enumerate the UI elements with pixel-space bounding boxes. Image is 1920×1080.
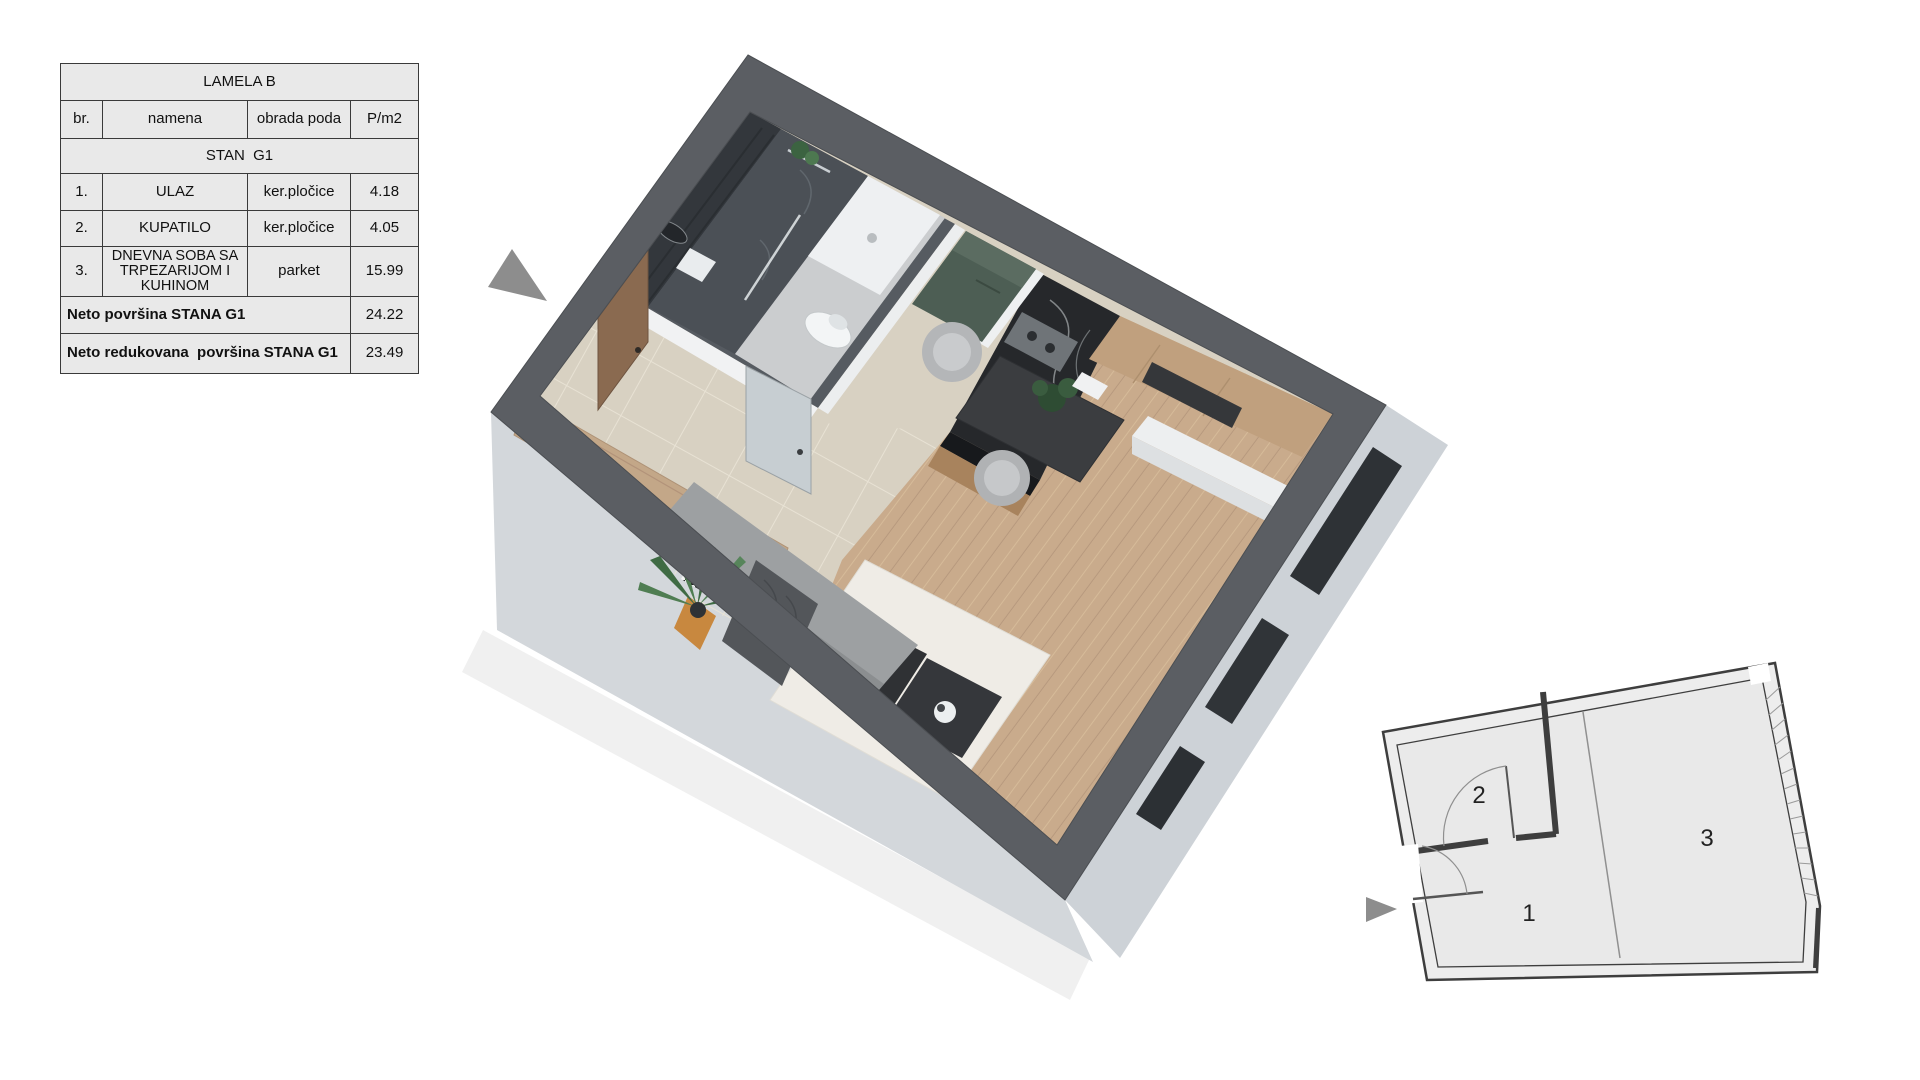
room-label-2: 2 (1472, 782, 1485, 809)
mini-plan-2d: 2 3 1 (1366, 663, 1820, 980)
burner-icon (1045, 343, 1055, 353)
dining-chair-seat (933, 333, 971, 371)
door-handle-icon (635, 347, 641, 353)
table-plant (1058, 378, 1078, 398)
room-label-1: 1 (1522, 900, 1535, 927)
tableware (937, 704, 945, 712)
plant-pot (690, 602, 706, 618)
bathroom-plant (805, 151, 819, 165)
entry-arrow-3d-icon (488, 249, 547, 301)
room-label-3: 3 (1700, 825, 1713, 852)
shower-drain (867, 233, 877, 243)
plan-partition (1516, 834, 1556, 838)
render-3d (0, 0, 1448, 1000)
table-plant (1032, 380, 1048, 396)
dining-chair-seat (984, 460, 1020, 496)
page: LAMELA B br. namena obrada poda P/m2 STA… (0, 0, 1920, 1080)
tray (934, 701, 956, 723)
scene: 2 3 1 (0, 0, 1920, 1080)
burner-icon (1027, 331, 1037, 341)
door-handle-icon (797, 449, 803, 455)
entry-arrow-2d-icon (1366, 897, 1397, 922)
